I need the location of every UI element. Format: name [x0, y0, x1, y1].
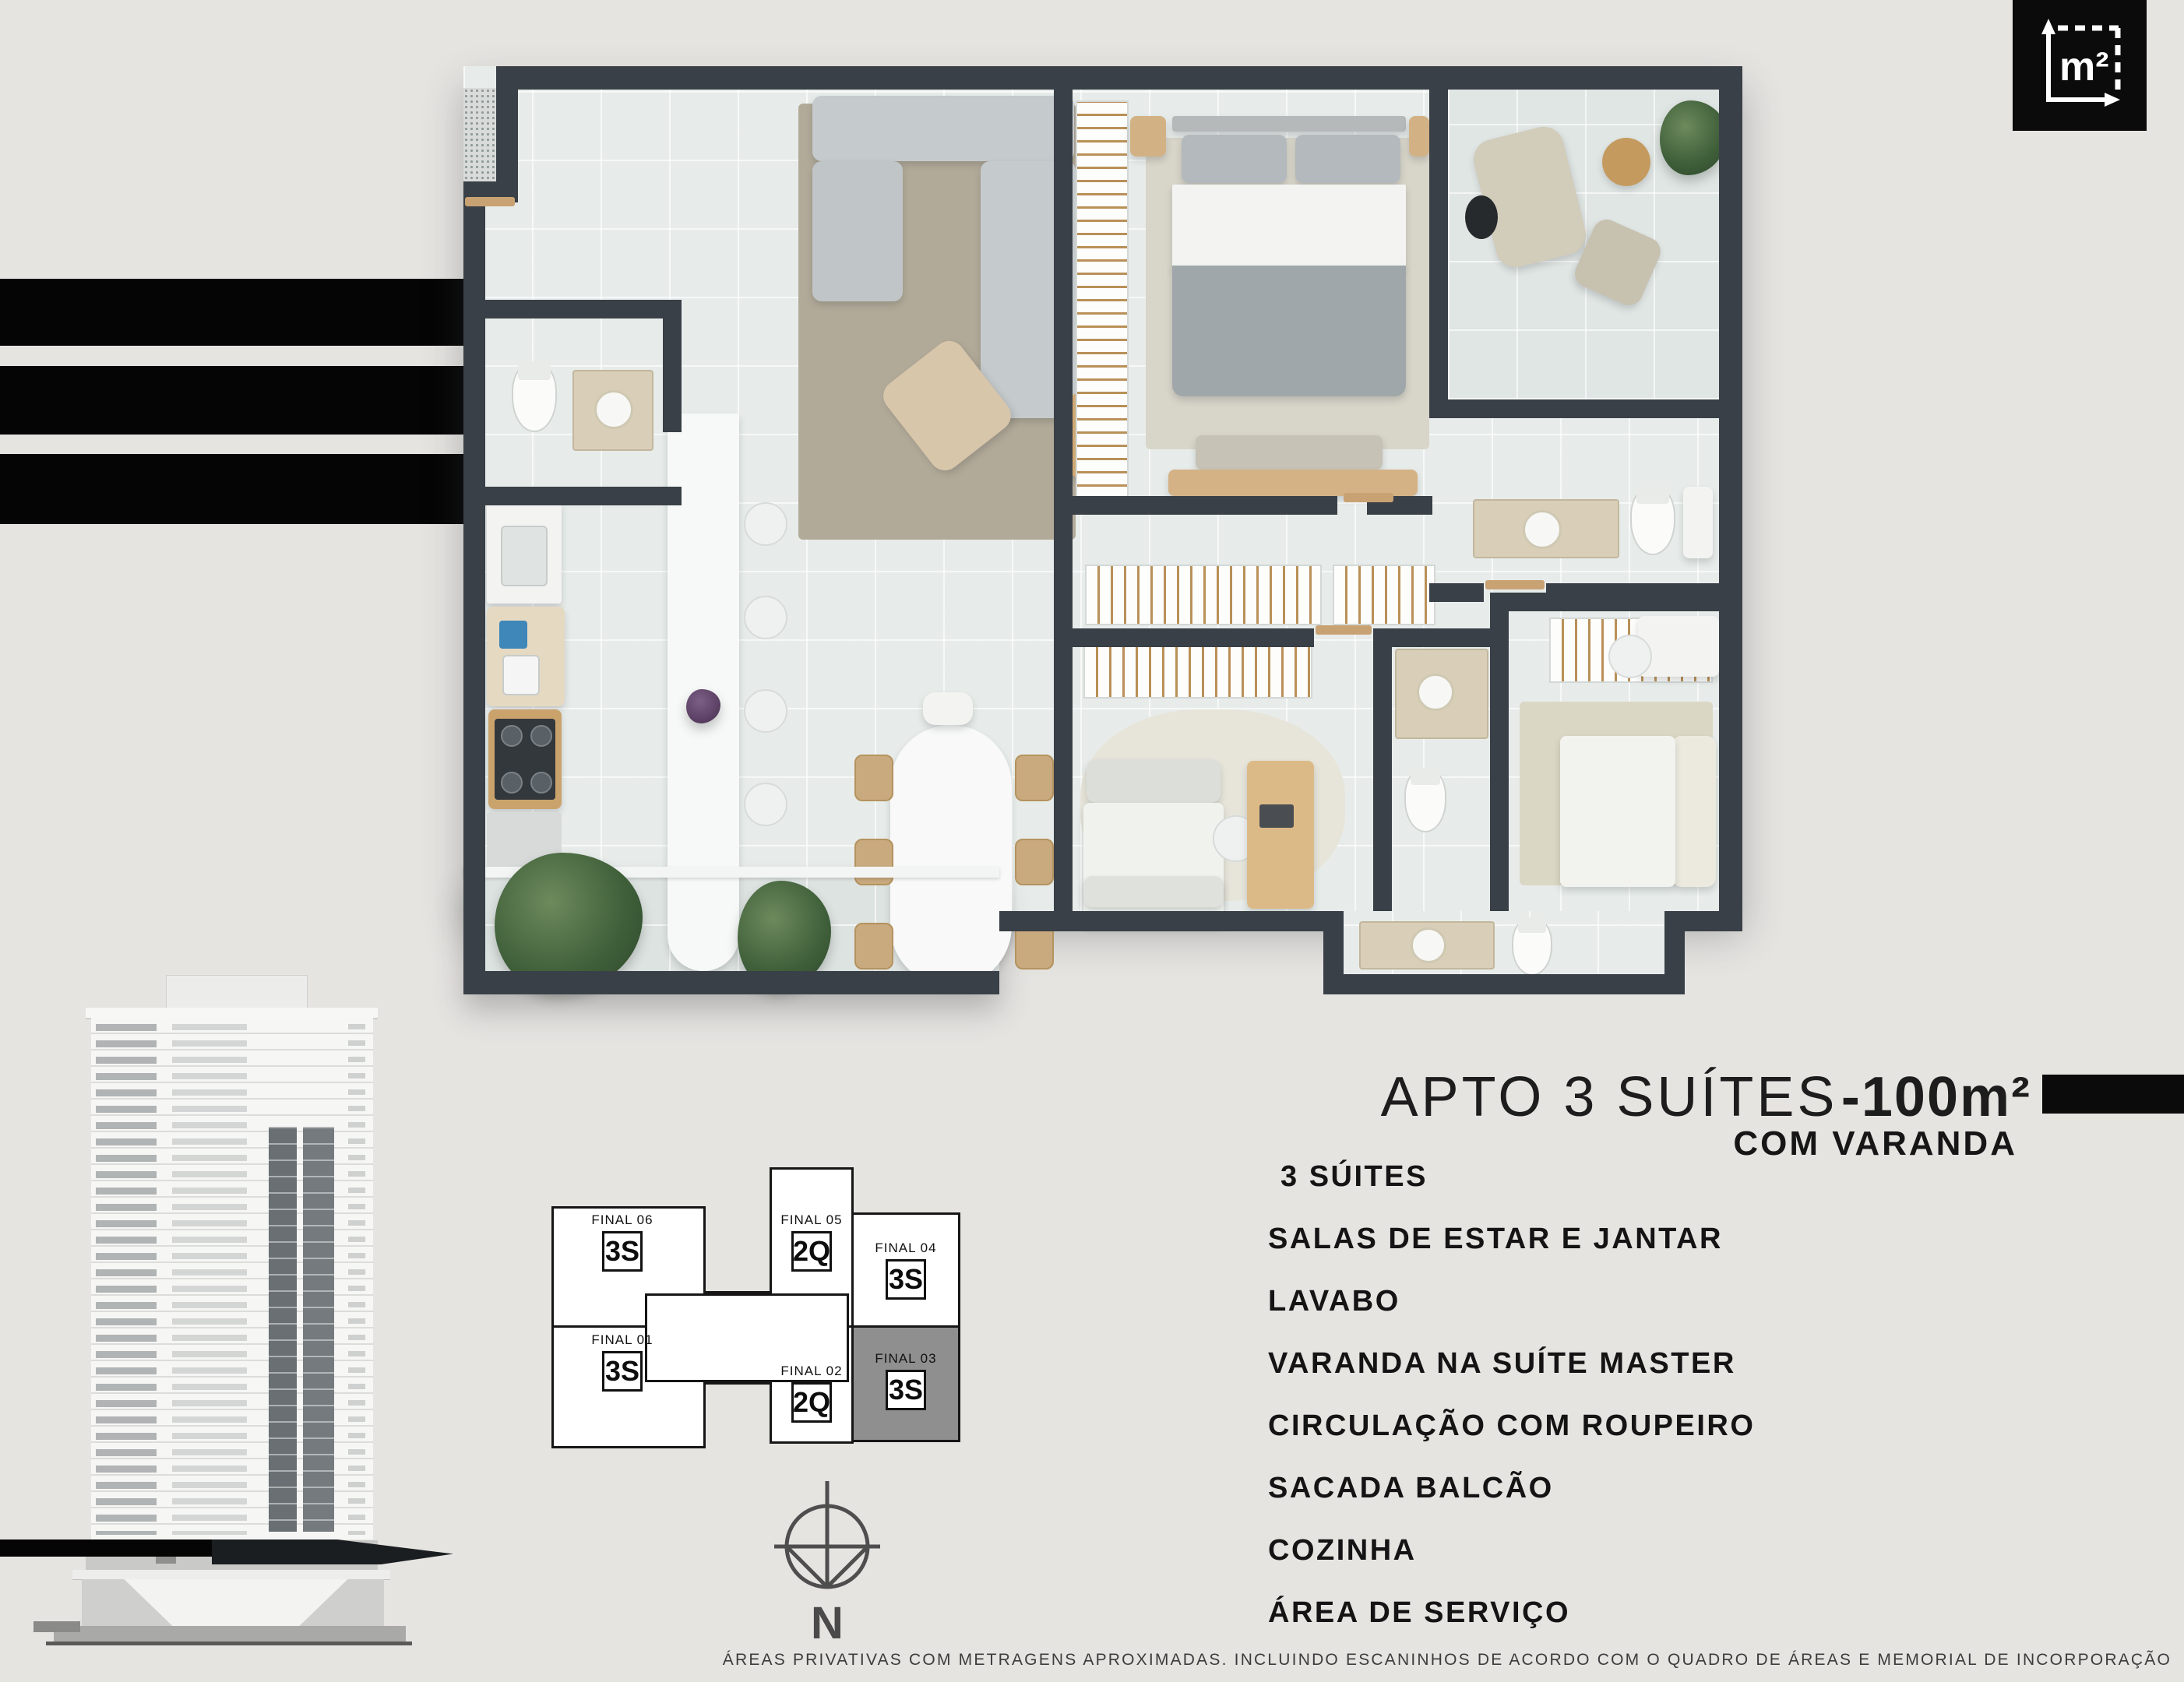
square-meter-badge: m²	[2013, 0, 2147, 131]
wall-bath	[1429, 583, 1484, 602]
title-main: APTO 3 SUÍTES	[1381, 1066, 1838, 1128]
site-dark-wedge	[212, 1539, 453, 1564]
bath2-sink	[1417, 674, 1454, 711]
bath3-sink	[1411, 927, 1446, 963]
wall-suite3	[1490, 593, 1719, 611]
bed-bench	[1196, 435, 1383, 470]
footer-disclaimer: ÁREAS PRIVATIVAS COM METRAGENS APROXIMAD…	[723, 1651, 2172, 1670]
area-measure-icon: m²	[2013, 0, 2147, 131]
feature-item: SALAS DE ESTAR E JANTAR	[1268, 1224, 1755, 1254]
door	[1344, 493, 1393, 502]
dining-chair	[854, 755, 893, 801]
island-stool	[744, 596, 787, 639]
wall-bath	[1429, 399, 1719, 418]
bath3-toilet	[1512, 918, 1552, 976]
laundry-basket	[502, 655, 540, 695]
wall-bath2	[1373, 628, 1392, 911]
wall-suite3	[1490, 593, 1509, 911]
site-black-band	[0, 1539, 212, 1557]
rooftop-box	[166, 975, 308, 1009]
ground-line	[46, 1642, 412, 1645]
wall-varanda	[1429, 88, 1448, 418]
page-canvas: m²	[0, 0, 2184, 1682]
burner	[501, 725, 523, 747]
podium-body	[82, 1579, 384, 1626]
wall-lavabo	[485, 487, 682, 505]
suite2-closet	[1083, 639, 1312, 698]
bath2-toilet	[1404, 769, 1446, 832]
unit-type-box: 3S	[886, 1370, 926, 1410]
circulation-closet	[1333, 565, 1435, 625]
wall-lavabo	[485, 300, 682, 318]
island-stool	[744, 689, 787, 733]
feature-item: LAVABO	[1268, 1286, 1755, 1316]
circulation-closet	[1085, 565, 1322, 625]
burner	[530, 725, 552, 747]
dining-chair	[1015, 839, 1054, 885]
master-bath-toilet	[1630, 487, 1675, 555]
dining-chair	[854, 923, 893, 969]
lavabo-sink	[594, 390, 633, 429]
wall-suite2	[1054, 515, 1073, 911]
suite2-bed-throw	[1083, 876, 1224, 907]
unit-label: FINAL 05	[765, 1212, 858, 1228]
glazing-column	[269, 1127, 297, 1532]
wall	[463, 181, 485, 994]
feature-item: 3 SÚITES	[1268, 1162, 1755, 1191]
window-column	[172, 1024, 247, 1535]
sofa-chaise	[812, 161, 903, 301]
tower-body	[91, 1018, 373, 1539]
nightstand	[1409, 116, 1429, 157]
title-area: -100m²	[1841, 1066, 2031, 1128]
wall	[463, 971, 999, 994]
north-compass-icon: N	[765, 1476, 889, 1648]
page-title: APTO 3 SUÍTES -100m²	[1381, 1065, 2031, 1129]
decor-bar-1	[0, 279, 477, 346]
wall-suite2	[1073, 628, 1314, 647]
lavabo-toilet	[512, 362, 557, 432]
title-subtitle: COM VARANDA	[1733, 1124, 2017, 1163]
pendant-lamp	[1465, 195, 1498, 239]
dining-chair	[854, 839, 893, 885]
master-closet	[1076, 100, 1129, 499]
burner	[530, 772, 552, 793]
feature-item: COZINHA	[1268, 1536, 1755, 1565]
unit-type-box: 3S	[602, 1351, 643, 1392]
suite2-desk	[1247, 761, 1314, 909]
wall-master	[1054, 88, 1073, 515]
door	[1316, 625, 1372, 635]
entry-door	[465, 197, 515, 206]
wall-bath2	[1373, 628, 1509, 647]
unit-label: FINAL 02	[765, 1364, 858, 1379]
unit-type-box: 3S	[886, 1259, 926, 1300]
burner	[501, 772, 523, 793]
dining-table	[890, 725, 1012, 987]
feature-item: CIRCULAÇÃO COM ROUPEIRO	[1268, 1411, 1755, 1441]
wall-master	[1073, 496, 1337, 515]
glazing-column	[303, 1127, 334, 1532]
title-accent-bar	[2042, 1075, 2184, 1114]
island-stool	[744, 783, 787, 826]
balcony-column	[96, 1024, 157, 1535]
decor-bar-2	[0, 366, 477, 435]
desk-chair	[1608, 635, 1652, 678]
kitchen-sink	[501, 526, 548, 586]
entry-granite-pad	[463, 88, 496, 181]
feature-item: SACADA BALCÃO	[1268, 1473, 1755, 1503]
unit-type-box: 3S	[602, 1231, 643, 1272]
unit-label: FINAL 01	[576, 1332, 669, 1348]
unit-label: FINAL 03	[859, 1351, 953, 1367]
window-column-right	[348, 1024, 365, 1535]
site-ledge	[33, 1621, 80, 1632]
wall-lavabo	[663, 300, 682, 432]
apartment-floorplan	[463, 66, 1742, 994]
decor-bar-3	[0, 454, 477, 524]
suite3-bed	[1560, 736, 1675, 887]
wall	[1323, 974, 1685, 994]
badge-m2-label: m²	[2059, 44, 2109, 90]
bed-pillow	[1295, 135, 1400, 183]
island-stool	[744, 502, 787, 546]
dining-chair	[1015, 755, 1054, 801]
wall	[496, 66, 1742, 90]
bed-headboard	[1172, 116, 1406, 132]
bed-sheet	[1172, 185, 1406, 269]
sofa-back-section	[812, 96, 1074, 161]
nightstand	[1130, 116, 1166, 157]
bed-duvet	[1172, 266, 1406, 396]
unit-label: FINAL 06	[576, 1212, 669, 1228]
wall	[999, 911, 1323, 931]
bath-cabinet	[1683, 487, 1713, 558]
feature-list: 3 SÚITES SALAS DE ESTAR E JANTAR LAVABO …	[1268, 1162, 1755, 1627]
podium-base	[54, 1626, 406, 1642]
wall	[1664, 911, 1742, 931]
suite2-bed-pillows	[1087, 759, 1221, 803]
unit-type-box: 2Q	[791, 1231, 832, 1272]
service-bin	[499, 621, 527, 649]
suite3-desk	[1638, 616, 1719, 677]
floor-key-plan: FINAL 06 3S FINAL 01 3S FINAL 05 2Q FINA…	[545, 1163, 981, 1468]
unit-label: FINAL 04	[859, 1240, 953, 1256]
suite3-bed-pillows	[1672, 736, 1716, 887]
feature-item: ÁREA DE SERVIÇO	[1268, 1598, 1755, 1627]
laptop	[1259, 804, 1294, 828]
dining-head-chair	[923, 692, 973, 725]
bed-pillow	[1182, 135, 1287, 183]
wall	[1719, 88, 1742, 915]
master-bath-sink	[1523, 510, 1562, 549]
compass-north-label: N	[811, 1598, 844, 1648]
round-side-table	[1602, 138, 1650, 186]
unit-type-box: 2Q	[791, 1382, 832, 1423]
master-dresser-desk	[1168, 470, 1418, 496]
feature-item: VARANDA NA SUÍTE MASTER	[1268, 1349, 1755, 1378]
door	[1485, 580, 1545, 589]
podium-face	[82, 1579, 384, 1626]
